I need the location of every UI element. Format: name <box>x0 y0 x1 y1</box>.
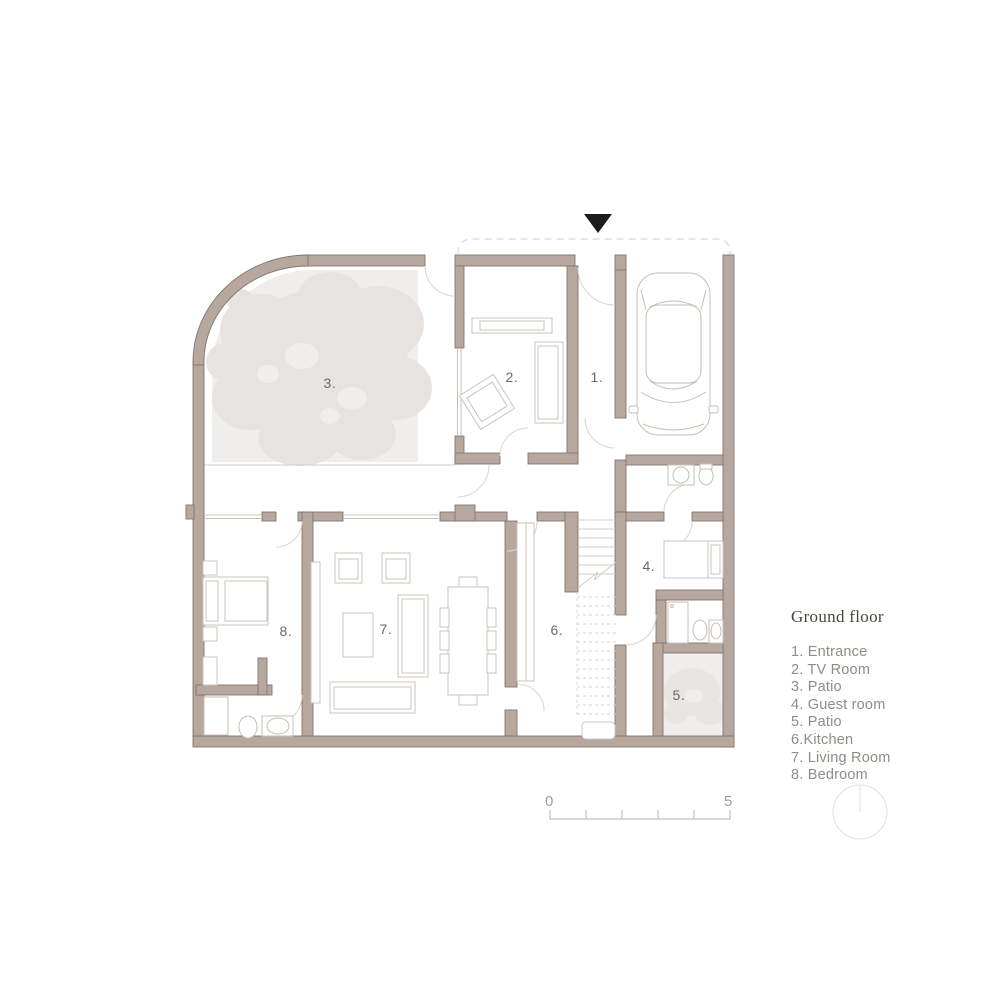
dining-chair <box>459 695 477 705</box>
wall-under-tvroom-a <box>455 453 500 464</box>
dining-chair <box>459 577 477 587</box>
hall-door-arc <box>457 465 489 497</box>
wall-tvroom-left-a <box>455 266 464 348</box>
car-mirror-left <box>629 406 638 413</box>
car-mirror-right <box>709 406 718 413</box>
room-label-kitchen: 6. <box>551 622 564 638</box>
dining-chair <box>487 608 496 627</box>
room-label-bedroom: 8. <box>280 623 293 639</box>
wall-top-left <box>308 255 425 266</box>
legend-item-guestroom: 4. Guest room <box>791 697 991 715</box>
wall-left-bump <box>186 505 194 519</box>
shower <box>204 697 228 735</box>
shower <box>668 602 688 643</box>
patio-3 <box>204 270 455 466</box>
bathroom-right-fixtures <box>668 602 723 643</box>
floor-plan-canvas: 1. 2. 3. 4. 5. 6. 7. 8. 0 5 Ground floor… <box>0 0 1000 1000</box>
car <box>629 273 718 435</box>
wall-bottom <box>193 736 734 747</box>
compass-icon <box>833 785 887 839</box>
wall-under-tvroom-b <box>528 453 578 464</box>
wall-mid-pillar <box>455 505 475 521</box>
wall-tvroom-right <box>567 266 578 462</box>
dining-chair <box>487 654 496 673</box>
dining-chair <box>487 631 496 650</box>
room-label-tvroom: 2. <box>506 369 519 385</box>
floor-plan-drawing: 1. 2. 3. 4. 5. 6. 7. 8. 0 5 <box>0 0 1000 1000</box>
toilet <box>693 620 707 640</box>
nightstand <box>203 627 217 641</box>
wall-bath-right-top <box>656 590 723 600</box>
wall-left <box>193 362 204 736</box>
wall-kitchen-left <box>505 521 517 687</box>
dining-table <box>448 587 488 695</box>
guest-furniture <box>664 541 723 578</box>
wall-entrance-garage <box>615 270 626 418</box>
tv-cabinet <box>472 318 552 333</box>
scale-bar: 0 5 <box>545 793 732 819</box>
room-label-entrance: 1. <box>591 369 604 385</box>
legend-title: Ground floor <box>791 607 991 627</box>
north-arrow-icon <box>584 214 612 233</box>
wall-right <box>723 255 734 747</box>
wall-top-right <box>455 255 575 266</box>
wall-kitchen-left-pillar <box>505 710 517 736</box>
room-label-living: 7. <box>380 621 393 637</box>
legend-list: 1. Entrance 2. TV Room 3. Patio 4. Guest… <box>791 644 991 785</box>
legend-item-livingroom: 7. Living Room <box>791 750 991 768</box>
powder-room-fixtures <box>668 464 713 485</box>
dining-chair <box>440 631 449 650</box>
toilet <box>699 467 713 485</box>
room-label-patio3: 3. <box>324 375 337 391</box>
kitchen-unit <box>582 722 615 739</box>
single-bed <box>664 541 723 578</box>
bedroom-door-arc <box>276 521 302 547</box>
double-bed <box>203 577 268 625</box>
legend-item-entrance: 1. Entrance <box>791 644 991 662</box>
wall-patio5-left <box>653 643 663 736</box>
dresser <box>203 657 217 685</box>
wall-powder-left <box>615 460 626 512</box>
wall-stairs-right-b <box>615 645 626 736</box>
wall-powder-bottom-b <box>692 512 723 521</box>
garage-door-arc <box>585 418 615 448</box>
sideboard <box>311 562 320 703</box>
sink <box>668 465 694 485</box>
stairs <box>577 520 616 718</box>
bathroom-left-fixtures <box>204 697 293 738</box>
wall-bedroom-stub <box>258 658 267 695</box>
legend-item-patio3: 3. Patio <box>791 679 991 697</box>
wall-mid-a <box>262 512 276 521</box>
scale-end-label: 5 <box>724 793 732 810</box>
toilet <box>239 716 257 738</box>
patio-gate-arc <box>425 266 455 296</box>
wall-pillar-entrance <box>615 255 626 270</box>
legend: Ground floor 1. Entrance 2. TV Room 3. P… <box>791 607 991 785</box>
legend-item-patio5: 5. Patio <box>791 714 991 732</box>
tvroom-door-arc <box>500 428 528 456</box>
bath-right-door-arc <box>626 615 656 645</box>
wall-stairs-right-a <box>615 512 626 615</box>
wall-stairs-left <box>565 512 578 592</box>
nightstand <box>203 561 217 575</box>
coffee-table <box>343 613 373 657</box>
dining-chair <box>440 654 449 673</box>
tv-sofa <box>535 342 563 423</box>
legend-item-bedroom: 8. Bedroom <box>791 767 991 785</box>
stairs-break-line <box>578 562 616 588</box>
wall-mid-d <box>537 512 565 521</box>
wall-patio5-top <box>653 643 723 653</box>
legend-item-kitchen: 6.Kitchen <box>791 732 991 750</box>
room-label-patio5: 5. <box>673 687 686 703</box>
room-label-guest: 4. <box>643 558 656 574</box>
front-door-arc <box>578 268 615 305</box>
powder-door-arc <box>664 484 692 512</box>
scale-start-label: 0 <box>545 793 553 810</box>
legend-item-tvroom: 2. TV Room <box>791 662 991 680</box>
dining-chair <box>440 608 449 627</box>
living-furniture <box>311 553 496 713</box>
kitchen-door-arc <box>517 684 544 711</box>
wall-shower-left <box>656 600 666 645</box>
